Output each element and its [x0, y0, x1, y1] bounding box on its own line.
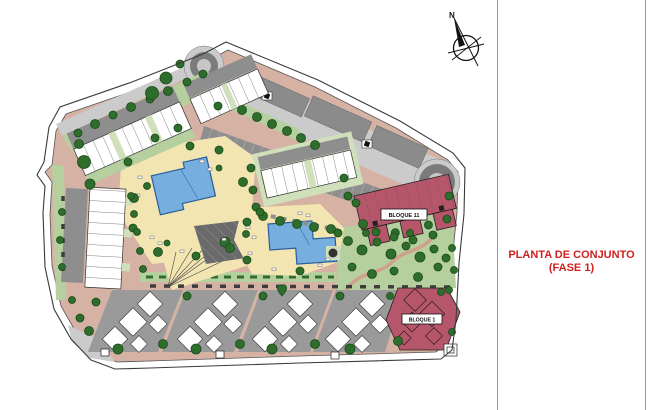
- compass-rose: N: [448, 11, 484, 66]
- title-panel: PLANTA DE CONJUNTO (FASE 1): [497, 0, 646, 410]
- bloque-11-label: BLOQUE 11: [389, 213, 420, 219]
- site-plan-sheet: BLOQUE 11 BLOQUE 1: [0, 0, 660, 410]
- drawing-subtitle: (FASE 1): [498, 262, 645, 275]
- pool-area-2: [234, 204, 344, 276]
- site-plan-drawing: BLOQUE 11 BLOQUE 1: [0, 0, 497, 410]
- compass-needle: [454, 18, 465, 47]
- drawing-title: PLANTA DE CONJUNTO: [498, 249, 645, 262]
- bloque-1-label: BLOQUE 1: [409, 318, 436, 324]
- car-icon: [362, 140, 372, 148]
- title-text: PLANTA DE CONJUNTO (FASE 1): [498, 249, 645, 275]
